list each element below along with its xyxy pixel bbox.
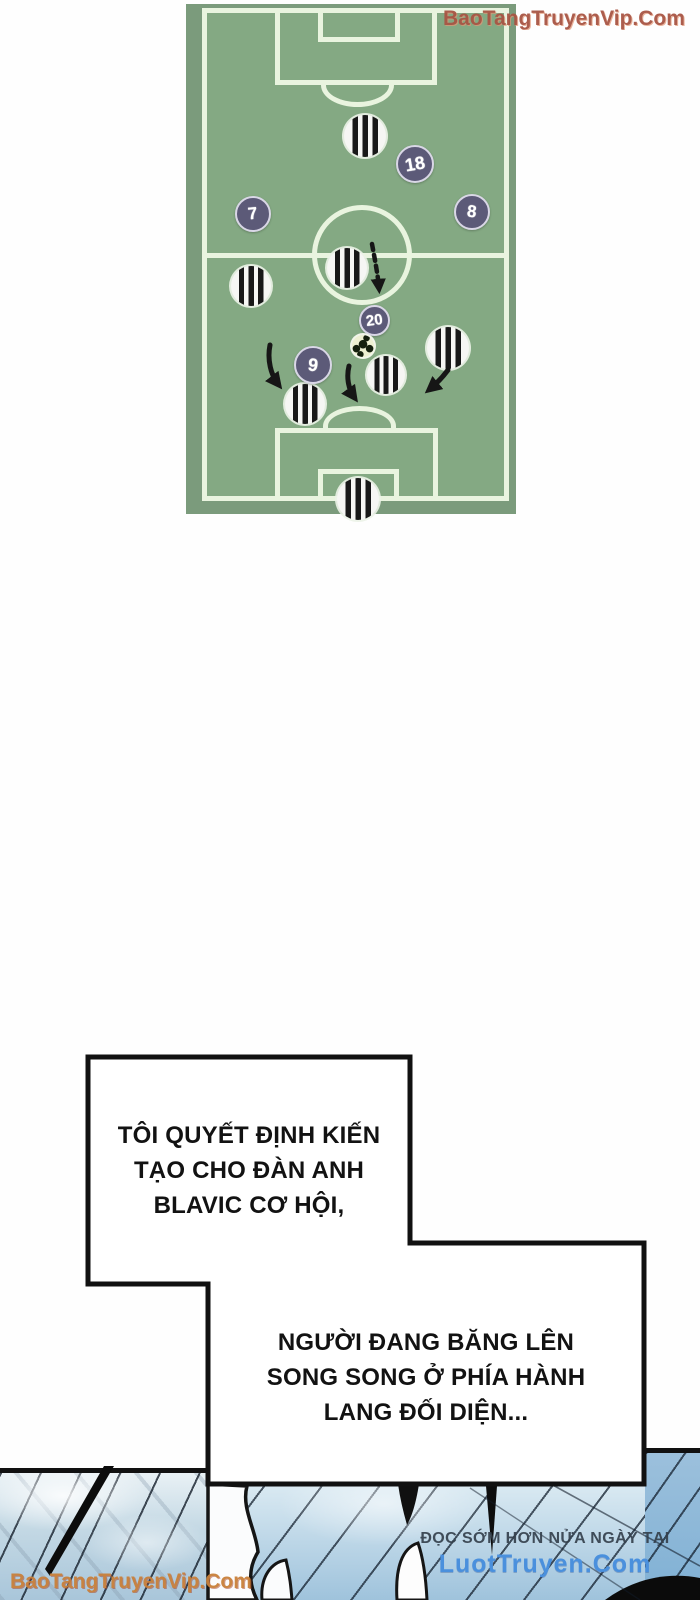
bubble1-line1: TÔI QUYẾT ĐỊNH KIẾN (118, 1118, 380, 1153)
black-corner-shape (605, 1576, 700, 1600)
watermark-bottom-left: BaoTangTruyenVip.Com (10, 1570, 252, 1594)
run-arrow-right (430, 370, 448, 389)
bubble2-line3: LANG ĐỐI DIỆN... (324, 1395, 529, 1430)
speech-bubble-2: NGƯỜI ĐANG BĂNG LÊN SONG SONG Ở PHÍA HÀN… (208, 1243, 644, 1484)
run-arrow-center (348, 366, 354, 397)
comic-page: 7188209 BaoTangTruyenVip.Com (0, 0, 700, 1600)
promo-site-name: LuotTruyen.Com (395, 1550, 695, 1579)
white-cloth-fold (262, 1560, 292, 1600)
watermark-top-right: BaoTangTruyenVip.Com (443, 7, 685, 31)
run-arrow-left (269, 345, 278, 384)
promo-text: ĐỌC SỚM HƠN NỬA NGÀY TẠI (395, 1530, 695, 1548)
soccer-field-diagram: 7188209 (186, 4, 516, 514)
pass-dashed-arrow (372, 244, 379, 288)
bubble2-line1: NGƯỜI ĐANG BĂNG LÊN (278, 1325, 574, 1360)
bubble1-line3: BLAVIC CƠ HỘI, (154, 1188, 345, 1223)
movement-arrows (186, 4, 516, 514)
bubble2-line2: SONG SONG Ở PHÍA HÀNH (267, 1360, 585, 1395)
bubble1-line2: TẠO CHO ĐÀN ANH (134, 1153, 364, 1188)
